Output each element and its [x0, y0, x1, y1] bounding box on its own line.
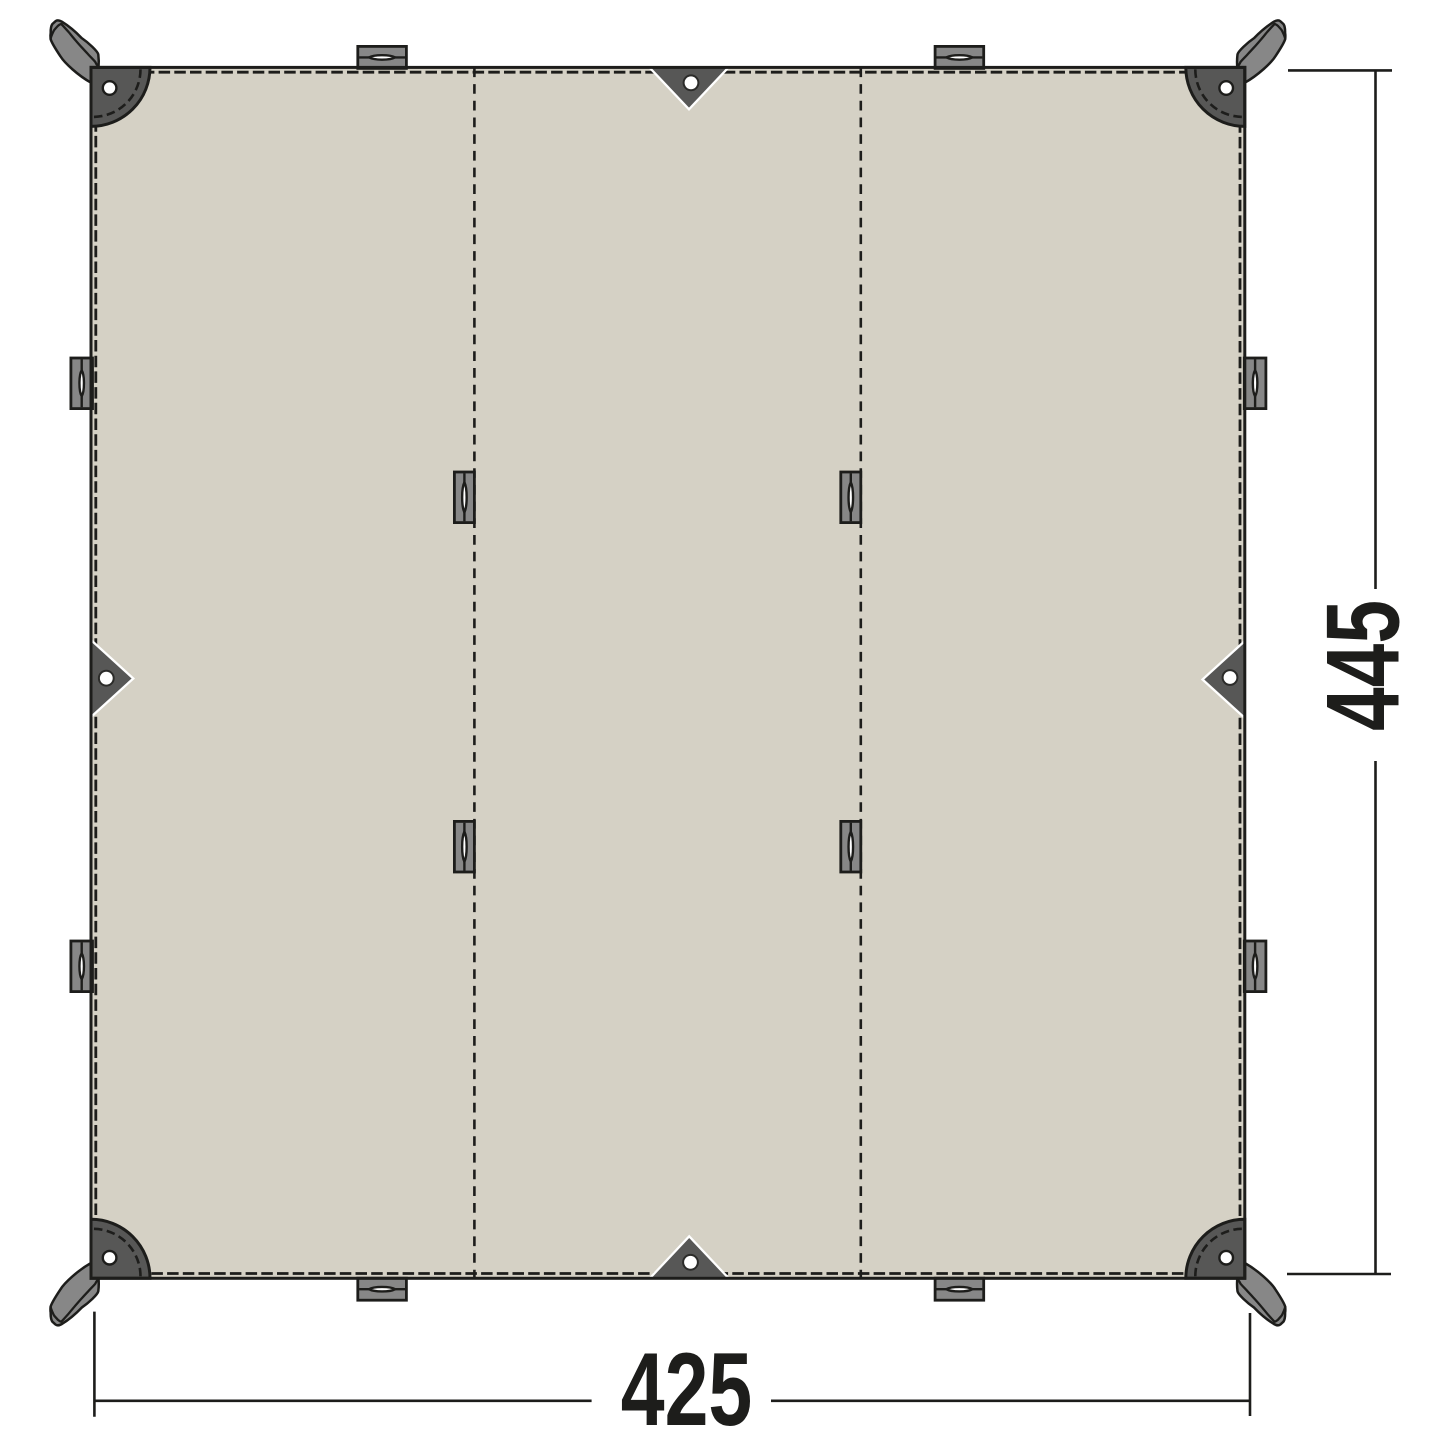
svg-text:425: 425: [621, 1332, 753, 1445]
svg-text:445: 445: [1306, 600, 1422, 731]
